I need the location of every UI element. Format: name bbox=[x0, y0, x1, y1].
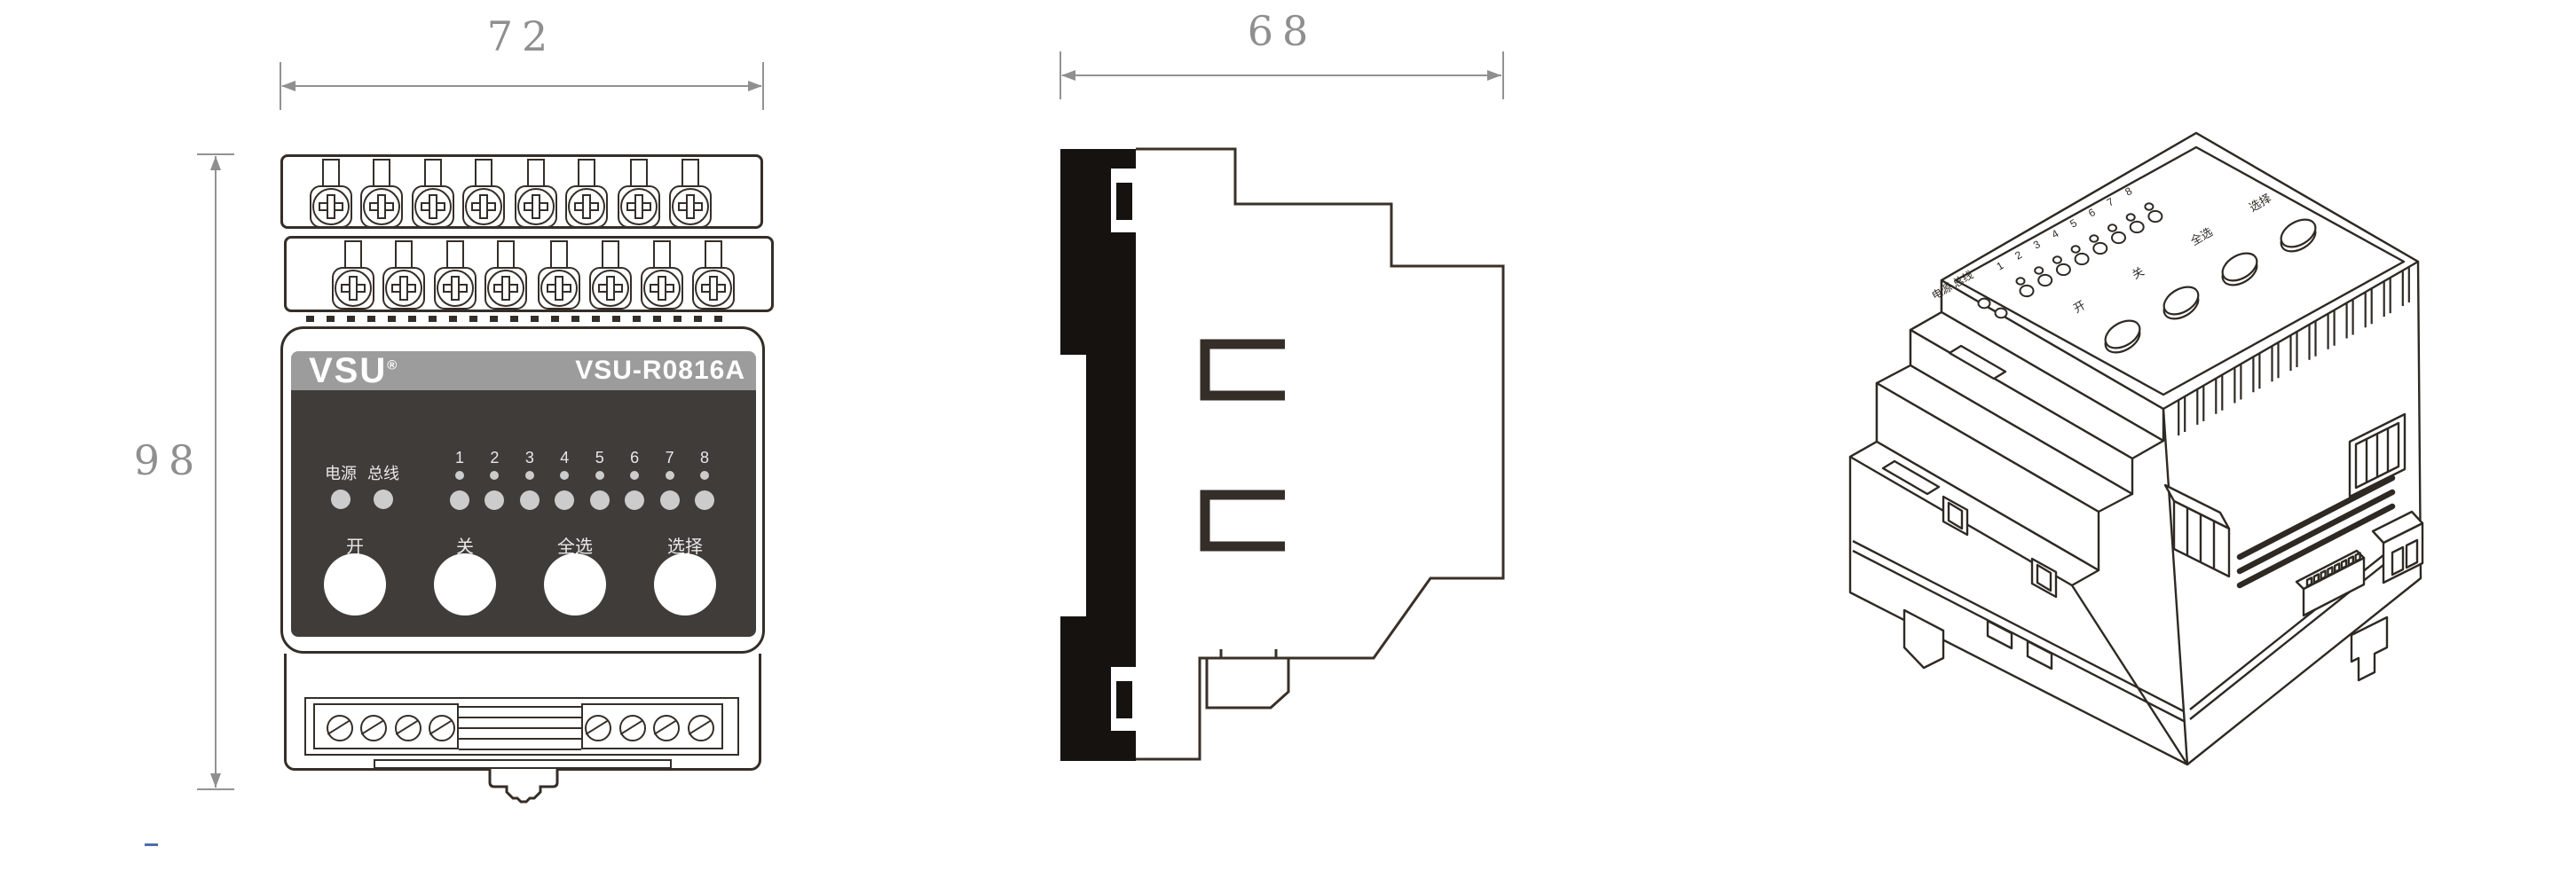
channel-led-large bbox=[625, 490, 644, 510]
drawing-canvas: 72 98 68 VSU® VSU-R0816A bbox=[0, 0, 2576, 886]
bottom-vent-line bbox=[459, 738, 581, 740]
panel-button bbox=[544, 553, 606, 615]
power-led-label: 电源 bbox=[325, 461, 357, 484]
brand-logo: VSU® bbox=[309, 351, 398, 391]
bottom-terminal-strip bbox=[304, 697, 739, 756]
front-face-panel: VSU® VSU-R0816A 电源 总线 12345678 开关全选选择 导轨… bbox=[291, 351, 756, 637]
iso-channel-led-small bbox=[2127, 214, 2135, 220]
terminal-tab bbox=[373, 159, 390, 189]
side-rail-hook-upper bbox=[1205, 344, 1285, 396]
screw-cross-v bbox=[429, 194, 437, 219]
channel-led-small bbox=[455, 471, 464, 480]
terminal-tab bbox=[497, 240, 515, 271]
iso-dip-tooth bbox=[2314, 574, 2319, 583]
product-description: 导轨式8路16A智能照明模块 bbox=[389, 631, 744, 637]
dim-depth-line bbox=[1062, 74, 1501, 76]
screw-cross-v bbox=[582, 194, 591, 219]
channel-led-large bbox=[520, 490, 540, 510]
channel-led-large bbox=[590, 490, 610, 510]
screw-cross-v bbox=[327, 194, 335, 219]
iso-channel-led-large bbox=[2021, 286, 2034, 296]
bus-led-label: 总线 bbox=[367, 461, 399, 484]
screw-cross-v bbox=[686, 194, 695, 219]
slotted-screw bbox=[619, 715, 646, 741]
channel-number: 7 bbox=[666, 449, 674, 467]
iso-channel-led-large bbox=[2131, 222, 2144, 232]
channel-led-small bbox=[700, 471, 709, 480]
iso-channel-led-small bbox=[2145, 203, 2153, 209]
panel-header-bar: VSU® VSU-R0816A bbox=[291, 351, 756, 390]
channel-number: 2 bbox=[490, 449, 499, 467]
slotted-screw bbox=[688, 715, 714, 741]
iso-dip-tooth bbox=[2321, 570, 2326, 579]
slotted-screw bbox=[327, 715, 353, 741]
blue-dash-mark bbox=[145, 843, 158, 846]
channel-led-large bbox=[555, 490, 574, 510]
dim-depth-arrow-left bbox=[1061, 70, 1075, 81]
bottom-vent-line bbox=[459, 749, 581, 750]
channel-number: 6 bbox=[630, 449, 639, 467]
channel-number: 4 bbox=[560, 449, 569, 467]
channel-led-large bbox=[450, 490, 469, 510]
panel-button bbox=[434, 553, 496, 615]
terminal-tab bbox=[527, 159, 545, 189]
terminal-tab bbox=[705, 240, 722, 271]
brand-text: VSU bbox=[309, 351, 387, 390]
terminal-row-second bbox=[284, 236, 774, 312]
bottom-vent-line bbox=[459, 727, 581, 729]
iso-dip-tooth bbox=[2356, 553, 2360, 561]
side-view bbox=[1047, 133, 1526, 807]
slotted-screw bbox=[429, 715, 455, 741]
side-housing-outline bbox=[1136, 149, 1503, 759]
terminal-tab bbox=[475, 159, 492, 189]
side-notch-top-inner bbox=[1116, 183, 1132, 220]
iso-channel-led-large bbox=[2076, 254, 2089, 264]
iso-channel-led-small bbox=[2035, 267, 2043, 273]
power-led bbox=[331, 490, 351, 509]
terminal-tab bbox=[602, 240, 619, 271]
channel-number: 5 bbox=[595, 449, 604, 467]
slotted-screw bbox=[395, 715, 421, 741]
screw-cross-v bbox=[349, 276, 358, 301]
panel-dark-area: 电源 总线 12345678 开关全选选择 导轨式8路16A智能照明模块 bbox=[291, 390, 756, 637]
bottom-vent-line bbox=[459, 706, 581, 708]
bottom-terminal-block-left bbox=[313, 703, 459, 749]
terminal-tab bbox=[395, 240, 413, 271]
iso-dip-tooth bbox=[2342, 560, 2346, 568]
isometric-view: 12345678电源 总线开关全选选择 bbox=[1810, 80, 2467, 789]
side-rail-hook-lower bbox=[1205, 495, 1285, 546]
iso-dip-tooth bbox=[2349, 556, 2353, 565]
iso-dip-tooth bbox=[2328, 567, 2332, 576]
channel-led-small bbox=[490, 471, 499, 480]
bottom-terminal-block-right bbox=[581, 703, 723, 749]
channel-number: 8 bbox=[700, 449, 709, 467]
iso-bus-led bbox=[1996, 309, 2007, 318]
bus-led bbox=[374, 490, 393, 509]
channel-led-small bbox=[525, 471, 534, 480]
terminal-row-top bbox=[280, 154, 763, 229]
screw-cross-v bbox=[479, 194, 488, 219]
channel-led-large bbox=[660, 490, 680, 510]
panel-button bbox=[324, 553, 386, 615]
dim-depth-arrow-right bbox=[1487, 70, 1501, 81]
side-notch-bottom-inner bbox=[1116, 681, 1132, 718]
channel-led-small bbox=[595, 471, 604, 480]
panel-button bbox=[654, 553, 716, 615]
slotted-screw bbox=[585, 715, 611, 741]
terminal-tab bbox=[550, 240, 568, 271]
iso-dip-tooth bbox=[2307, 577, 2312, 586]
screw-cross-v bbox=[377, 194, 386, 219]
screw-cross-v bbox=[501, 276, 510, 301]
terminal-tab bbox=[344, 240, 362, 271]
channel-led-large bbox=[695, 490, 714, 510]
channel-led-small bbox=[666, 471, 674, 480]
screw-cross-v bbox=[634, 194, 643, 219]
iso-channel-led-large bbox=[2038, 275, 2052, 286]
screw-cross-v bbox=[399, 276, 408, 301]
iso-channel-led-large bbox=[2057, 264, 2070, 275]
iso-dip-tooth bbox=[2335, 563, 2339, 572]
slotted-screw bbox=[653, 715, 680, 741]
channel-led-small bbox=[630, 471, 639, 480]
side-din-clip bbox=[1207, 658, 1288, 708]
terminal-tab bbox=[322, 159, 340, 189]
screw-cross-v bbox=[658, 276, 666, 301]
iso-channel-led-small bbox=[2108, 224, 2116, 231]
terminal-tab bbox=[446, 240, 464, 271]
iso-channel-led-large bbox=[2112, 232, 2125, 243]
screw-cross-v bbox=[451, 276, 460, 301]
iso-power-led bbox=[1979, 299, 1990, 309]
screw-cross-v bbox=[606, 276, 615, 301]
terminal-tab bbox=[578, 159, 595, 189]
iso-channel-led-large bbox=[2093, 243, 2107, 254]
model-number: VSU-R0816A bbox=[479, 356, 745, 386]
front-view: VSU® VSU-R0816A 电源 总线 12345678 开关全选选择 导轨… bbox=[0, 0, 887, 886]
screw-cross-v bbox=[709, 276, 718, 301]
dim-depth-tick-right bbox=[1502, 51, 1504, 99]
iso-channel-led-large bbox=[2148, 211, 2162, 222]
iso-channel-led-small bbox=[2053, 256, 2061, 263]
terminal-tab bbox=[630, 159, 648, 189]
din-clip-front bbox=[479, 768, 568, 807]
terminal-tab bbox=[424, 159, 442, 189]
channel-led-small bbox=[560, 471, 569, 480]
registered-mark: ® bbox=[387, 358, 398, 373]
channel-number: 1 bbox=[455, 449, 464, 467]
vent-dash-row-top bbox=[306, 316, 725, 322]
channel-led-large bbox=[484, 490, 504, 510]
terminal-tab bbox=[681, 159, 699, 189]
dim-depth-value: 68 bbox=[1229, 7, 1335, 55]
iso-channel-led-small bbox=[2090, 235, 2098, 241]
iso-channel-led-small bbox=[2017, 278, 2025, 284]
bottom-vent-line bbox=[459, 717, 581, 718]
slotted-screw bbox=[360, 715, 387, 741]
screw-cross-v bbox=[555, 276, 563, 301]
terminal-tab bbox=[653, 240, 671, 271]
iso-channel-led-small bbox=[2072, 246, 2080, 252]
channel-number: 3 bbox=[525, 449, 534, 467]
screw-cross-v bbox=[532, 194, 540, 219]
